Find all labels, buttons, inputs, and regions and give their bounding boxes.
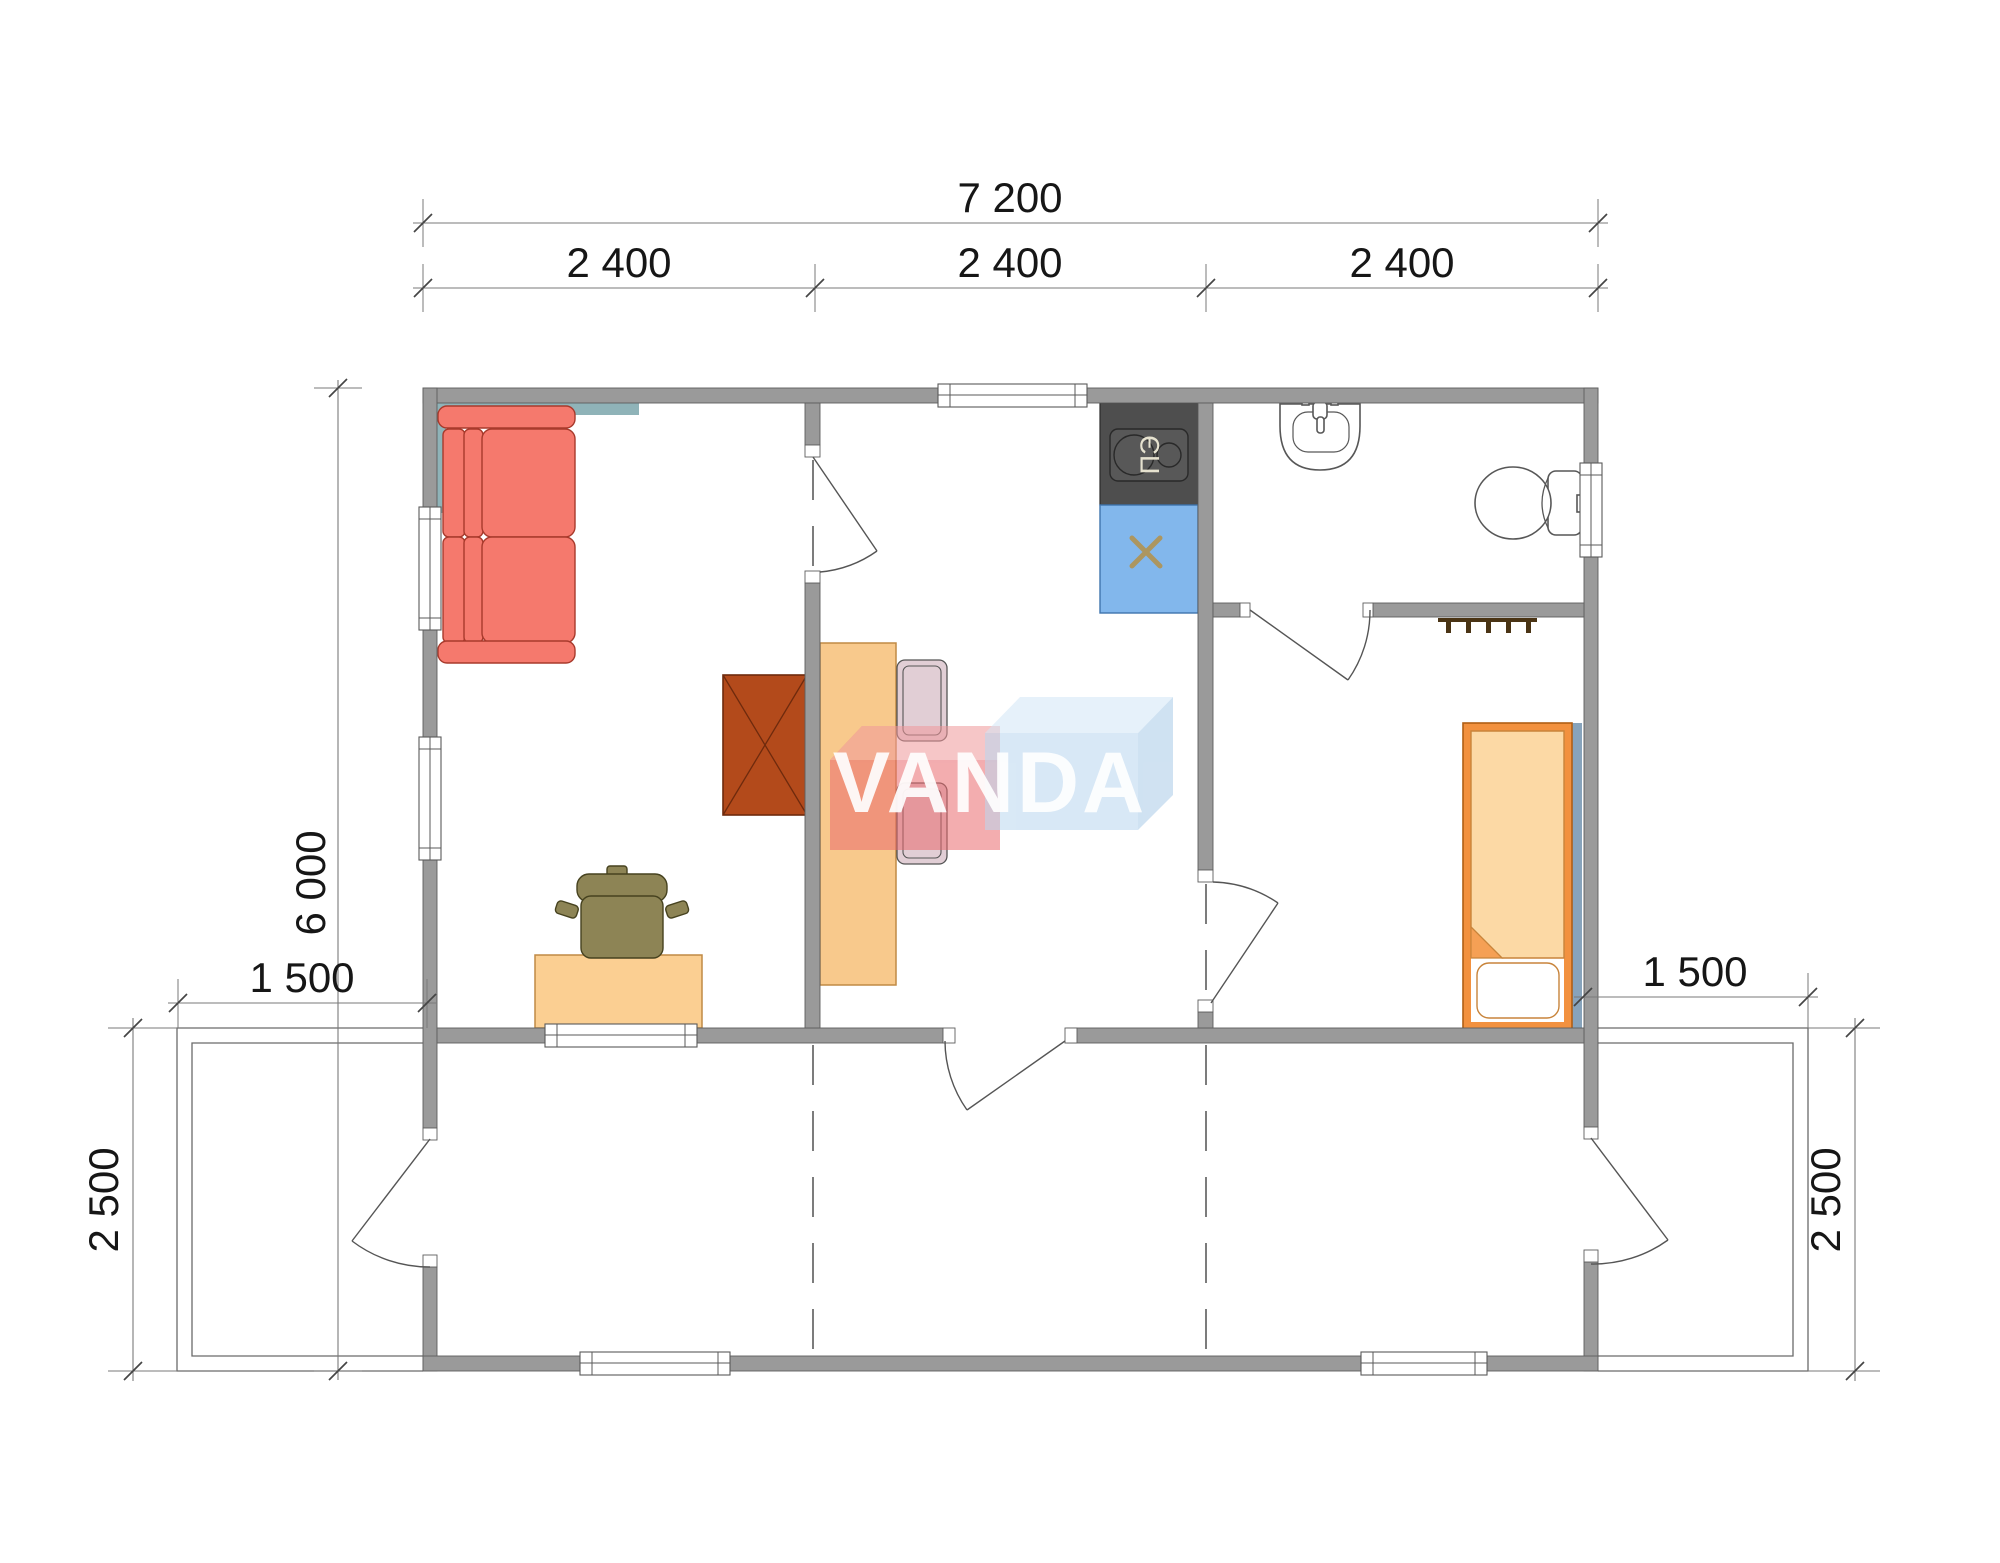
sofa-back-cushion xyxy=(443,537,465,643)
bed-blanket xyxy=(1471,731,1564,958)
sofa-seat-cushion xyxy=(482,537,575,643)
interior-wall-veranda xyxy=(1067,1028,1584,1043)
terrace-left-inner-edge xyxy=(192,1043,423,1356)
door-living-dining xyxy=(813,457,877,572)
wardrobe-cabinet xyxy=(723,675,807,815)
terrace-right-outer-edge xyxy=(1598,1028,1808,1371)
door-jamb xyxy=(423,1255,437,1267)
dimension-terrace-right-width: 1 500 xyxy=(1574,948,1818,1028)
faucet-spout xyxy=(1317,417,1324,433)
partition-wall-1 xyxy=(805,583,820,1028)
dimension-terrace-left-depth: 2 500 xyxy=(80,1018,177,1381)
terrace-right-inner-edge xyxy=(1598,1043,1793,1356)
dim-label-terrace-left-depth: 2 500 xyxy=(80,1147,127,1252)
bed xyxy=(1463,723,1582,1030)
dimension-modules: 2 400 2 400 2 400 xyxy=(413,239,1608,312)
electric-stove: ПЭ xyxy=(1100,403,1198,505)
door-jamb xyxy=(1363,603,1373,617)
sofa-back-cushion xyxy=(464,537,483,643)
door-jamb xyxy=(943,1028,955,1043)
partition-wall-2 xyxy=(1198,1012,1213,1028)
door-jamb xyxy=(1198,870,1213,882)
exterior-wall-left xyxy=(423,1267,437,1371)
coat-hook xyxy=(1506,622,1511,633)
coat-hook xyxy=(1486,622,1491,633)
stove-label: ПЭ xyxy=(1135,436,1165,475)
door-jamb xyxy=(423,1128,437,1140)
interior-wall-veranda xyxy=(437,1028,545,1043)
sink-cabinet xyxy=(1100,505,1198,613)
desk-chair-armrest xyxy=(665,900,690,919)
kitchen-block: ПЭ xyxy=(1100,403,1198,613)
sofa-armrest-top xyxy=(438,406,575,428)
desk xyxy=(535,955,702,1028)
dimension-depth: 6 000 xyxy=(287,379,362,1380)
sofa-armrest-bottom xyxy=(438,641,575,663)
coat-hook xyxy=(1446,622,1451,633)
interior-wall-veranda xyxy=(697,1028,943,1043)
door-jamb xyxy=(1065,1028,1077,1043)
floor-plan-drawing: ПЭ xyxy=(0,0,2000,1563)
dim-label-terrace-right-width: 1 500 xyxy=(1642,948,1747,995)
door-jamb xyxy=(1584,1250,1598,1262)
door-jamb xyxy=(1240,603,1250,617)
dimension-terrace-right-depth: 2 500 xyxy=(1802,1018,1880,1381)
dim-label-module-3: 2 400 xyxy=(1349,239,1454,286)
desk-area xyxy=(535,866,702,1028)
window-left-1 xyxy=(419,507,441,630)
bathroom-wall xyxy=(1373,603,1584,617)
window-right xyxy=(1580,463,1602,557)
door-bathroom xyxy=(1250,610,1370,680)
window-veranda-interior xyxy=(545,1024,697,1047)
kitchen-sink xyxy=(1100,505,1198,613)
door-jambs xyxy=(423,445,1598,1267)
window-bottom-1 xyxy=(580,1352,730,1375)
door-terrace-left xyxy=(352,1139,430,1267)
dim-label-module-2: 2 400 xyxy=(957,239,1062,286)
desk-chair-seat xyxy=(581,896,663,958)
logo-text: VANDA xyxy=(833,735,1147,831)
bathroom-wall xyxy=(1213,603,1240,617)
door-entry-veranda xyxy=(945,1041,1065,1110)
door-terrace-right xyxy=(1591,1138,1668,1264)
door-jamb xyxy=(1198,1000,1213,1012)
dim-label-terrace-left-width: 1 500 xyxy=(249,954,354,1001)
exterior-wall-bottom xyxy=(1487,1356,1598,1371)
bed-wall-backing xyxy=(1572,723,1582,1030)
coat-hooks xyxy=(1438,618,1537,633)
dim-label-depth: 6 000 xyxy=(287,830,334,935)
sofa-back-cushion xyxy=(443,429,465,537)
terrace-left-outer-edge xyxy=(177,1028,423,1371)
sofa-seat-cushion xyxy=(482,429,575,537)
terrace-left xyxy=(177,1028,423,1371)
coat-hook-rail xyxy=(1438,618,1537,622)
dim-label-module-1: 2 400 xyxy=(566,239,671,286)
door-jamb xyxy=(1584,1127,1598,1139)
door-jamb xyxy=(805,445,820,457)
exterior-wall-right xyxy=(1584,557,1598,1127)
dimension-total-width: 7 200 xyxy=(413,174,1608,247)
desk-chair xyxy=(554,866,689,958)
desk-chair-armrest xyxy=(554,900,579,919)
window-top xyxy=(938,384,1087,407)
window-left-2 xyxy=(419,737,441,860)
exterior-wall-left xyxy=(423,630,437,737)
exterior-wall-top xyxy=(1087,388,1598,403)
toilet-bowl xyxy=(1475,467,1551,539)
dimension-terrace-left-width: 1 500 xyxy=(168,954,437,1028)
toilet xyxy=(1475,467,1584,539)
window-bottom-2 xyxy=(1361,1352,1487,1375)
dim-label-terrace-right-depth: 2 500 xyxy=(1802,1147,1849,1252)
exterior-wall-top xyxy=(423,388,938,403)
coat-hook xyxy=(1466,622,1471,633)
bathroom-sink xyxy=(1280,399,1360,470)
terrace-right xyxy=(1598,1028,1808,1371)
exterior-wall-right xyxy=(1584,388,1598,463)
dim-label-total-width: 7 200 xyxy=(957,174,1062,221)
door-bedroom xyxy=(1211,882,1278,1003)
partition-wall-1 xyxy=(805,403,820,445)
bed-pillow xyxy=(1477,963,1559,1018)
exterior-wall-left xyxy=(423,388,437,507)
exterior-wall-right xyxy=(1584,1262,1598,1371)
door-jamb xyxy=(805,571,820,583)
floor-plan-page: ПЭ xyxy=(0,0,2000,1563)
exterior-wall-bottom xyxy=(423,1356,580,1371)
partition-wall-2 xyxy=(1198,403,1213,870)
sofa-back-cushion xyxy=(464,429,483,537)
coat-hook xyxy=(1526,622,1531,633)
sofa xyxy=(438,406,575,663)
exterior-wall-bottom xyxy=(730,1356,1361,1371)
